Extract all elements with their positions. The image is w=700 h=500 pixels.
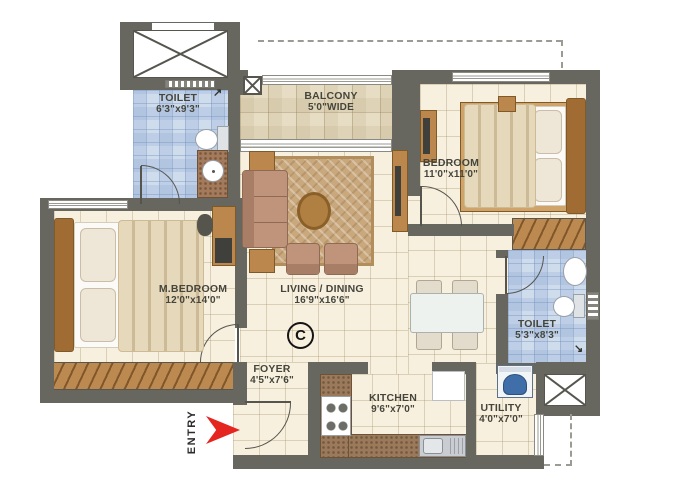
armchair-back (325, 264, 357, 274)
tv-master (215, 238, 232, 263)
sofa-cushion-line (254, 196, 287, 197)
entry-label: ENTRY (186, 400, 200, 464)
label-toilet-top: TOILET 6'3"x9'3" (133, 92, 223, 116)
dashed-projection-top-right (561, 40, 563, 68)
room-name: BEDROOM (423, 157, 479, 169)
dashed-projection-duct-bottom (544, 464, 572, 466)
room-dims: 4'0"x7'0" (479, 414, 523, 426)
armchair-back (287, 264, 319, 274)
wall (120, 22, 133, 90)
room-name: FOYER (253, 363, 290, 375)
dashed-projection-duct (570, 414, 572, 466)
dining-table (410, 293, 484, 333)
coffee-table (297, 192, 331, 230)
door-leaf-master-bedroom (237, 324, 239, 362)
room-dims: 4'5"x7'6" (250, 375, 294, 387)
room-dims: 6'3"x9'3" (156, 104, 200, 116)
dashed-projection-top (258, 40, 562, 42)
bed-2-pillow (534, 158, 562, 202)
dining-chair (416, 330, 442, 350)
label-foyer: FOYER 4'5"x7'6" (240, 363, 304, 387)
washbasin-toilet-right (563, 257, 587, 286)
shower-arrow-icon: ↘ (574, 342, 583, 355)
tv-living (395, 166, 401, 216)
label-utility: UTILITY 4'0"x7'0" (468, 402, 534, 426)
room-dims: 9'6"x7'0" (371, 404, 415, 416)
door-leaf-bedroom (420, 186, 422, 226)
bed-master-pillow (80, 288, 116, 342)
wall-gap (152, 23, 214, 30)
wall (40, 390, 237, 403)
fridge (432, 371, 465, 401)
wc-toilet-right-bowl (553, 296, 575, 317)
shaft-top-left (133, 30, 228, 78)
washbasin-drain-dot (212, 170, 215, 173)
shaft-balcony-corner (243, 76, 262, 95)
window-utility (534, 414, 544, 456)
wall (308, 362, 368, 374)
floor-plan: ↗ ↘ TOILET 6'3"x9'3" BALCONY 5'0"WIDE BE… (0, 0, 700, 500)
wall (308, 362, 320, 458)
sofa-cushion-line (254, 222, 287, 223)
room-name: TOILET (159, 92, 197, 104)
label-bedroom: BEDROOM 11'0"x11'0" (408, 157, 494, 181)
bed-master-headboard (54, 218, 74, 352)
wardrobe-master (52, 362, 237, 390)
room-name: LIVING / DINING (280, 283, 364, 295)
label-living-dining: LIVING / DINING 16'9"x16'6" (252, 283, 392, 307)
stove (321, 396, 351, 436)
room-dims: 11'0"x11'0" (424, 169, 478, 181)
room-dims: 16'9"x16'6" (294, 295, 349, 307)
sofa-back (243, 171, 254, 247)
chair-master (197, 214, 213, 236)
wall (536, 406, 600, 416)
bed-2-pillow (534, 110, 562, 154)
copyright-mark: C (287, 322, 314, 349)
nightstand-bedroom (498, 96, 516, 112)
label-master-bedroom: M.BEDROOM 12'0"x14'0" (143, 283, 243, 307)
washing-machine-drum (503, 374, 527, 395)
side-table (249, 249, 275, 273)
window-balcony-railing (262, 75, 392, 85)
label-balcony: BALCONY 5'0"WIDE (272, 90, 390, 114)
door-leaf-toilet-right (505, 256, 507, 294)
wc-toilet-top-tank (217, 126, 229, 152)
label-kitchen: KITCHEN 9'6"x7'0" (352, 392, 434, 416)
room-dims: 5'0"WIDE (308, 102, 354, 114)
door-leaf-entry (245, 401, 291, 403)
dining-chair (452, 330, 478, 350)
bed-2-blanket (464, 104, 536, 208)
room-name: TOILET (518, 318, 556, 330)
sink-basin (423, 438, 443, 454)
label-toilet-right: TOILET 5'3"x8'3" (504, 318, 570, 342)
shaft-bottom-right (544, 374, 586, 406)
bed-2-headboard (566, 98, 586, 214)
washing-machine-panel (499, 367, 531, 372)
room-name: UTILITY (480, 402, 521, 414)
wardrobe-bedroom (512, 218, 586, 250)
bed-master-pillow (80, 228, 116, 282)
window-bedroom (452, 72, 550, 82)
room-name: M.BEDROOM (159, 283, 227, 295)
wall (40, 198, 54, 403)
wall (228, 22, 240, 215)
room-name: KITCHEN (369, 392, 417, 404)
tv-bedroom (423, 118, 430, 154)
vent-toilet-top (165, 80, 215, 88)
sink-drainboard (447, 438, 463, 454)
vent-toilet-right (587, 292, 599, 320)
wc-toilet-top-bowl (195, 129, 218, 150)
wall (536, 362, 600, 374)
room-name: BALCONY (304, 90, 357, 102)
window-master-bedroom (48, 200, 128, 209)
room-dims: 5'3"x8'3" (515, 330, 559, 342)
door-leaf-toilet-top (140, 166, 142, 204)
room-dims: 12'0"x14'0" (165, 295, 220, 307)
